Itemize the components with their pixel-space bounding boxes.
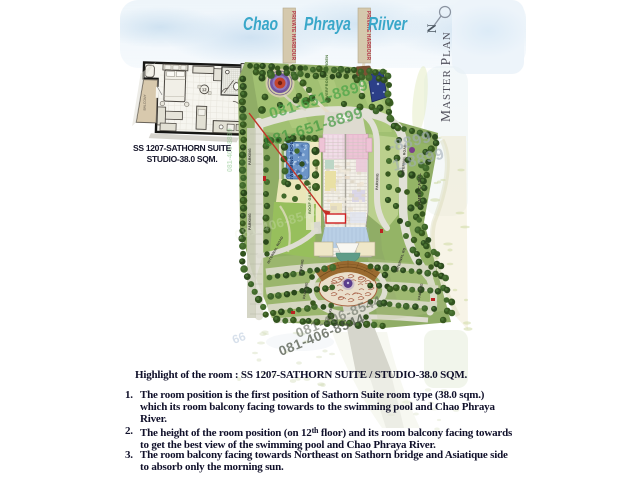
svg-text:66: 66	[230, 329, 248, 347]
svg-text:SWIMMING POOL: SWIMMING POOL	[289, 141, 294, 180]
svg-text:12: 12	[202, 87, 207, 92]
svg-text:PARKING: PARKING	[248, 148, 252, 165]
svg-text:SAMRE CANAL: SAMRE CANAL	[417, 173, 422, 208]
svg-text:BALCONY: BALCONY	[143, 93, 148, 110]
svg-text:PARKING: PARKING	[375, 173, 380, 190]
